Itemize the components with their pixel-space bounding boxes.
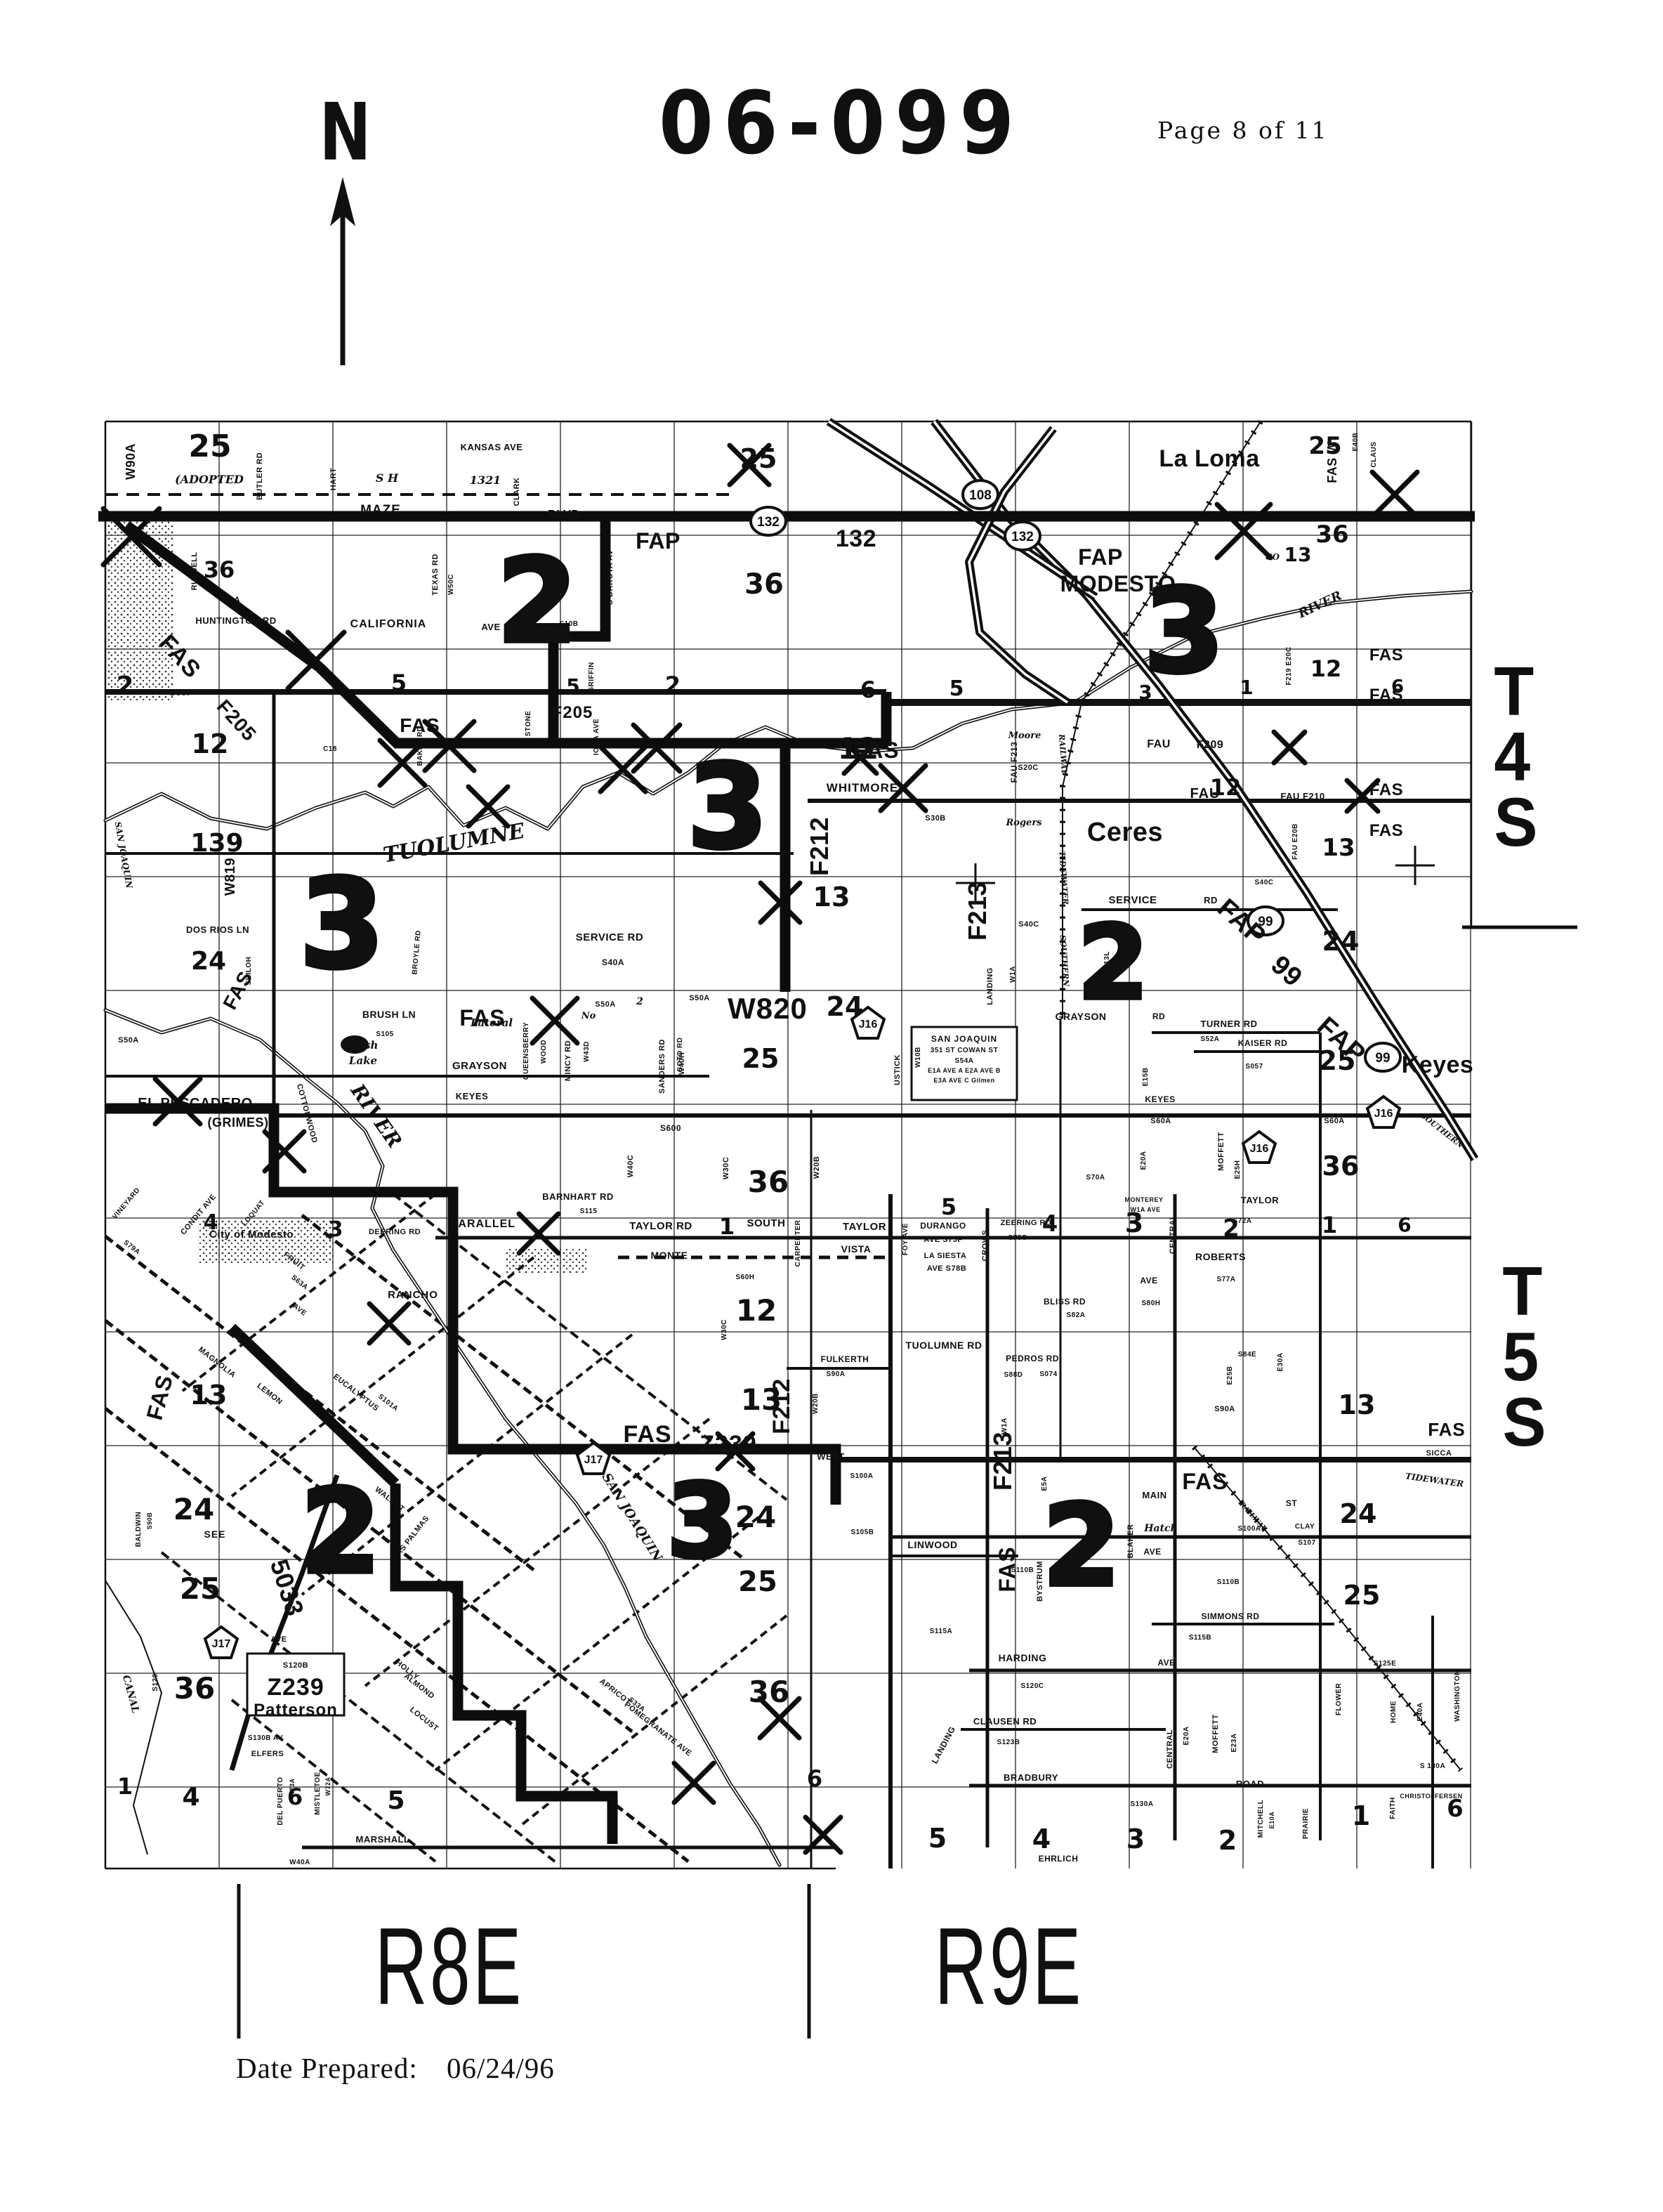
shield-number: 108 <box>969 488 992 503</box>
map-label: 24 <box>1322 926 1360 957</box>
map-label: La Loma <box>1159 445 1260 472</box>
date-prepared-value: 06/24/96 <box>447 2052 555 2084</box>
map-label: MONTEREY <box>1124 1196 1163 1203</box>
map-label: KEYES <box>1145 1094 1175 1104</box>
map-label: PRAIRIE <box>1302 1808 1310 1839</box>
map-label: BRUSH LN <box>362 1009 416 1020</box>
map-label: TUOLUMNE <box>381 819 527 868</box>
map-label: S110B <box>1011 1566 1034 1574</box>
map-label: KAISER RD <box>1238 1038 1288 1048</box>
shield-number: J16 <box>1250 1143 1269 1155</box>
map-label: FAP <box>636 528 681 554</box>
map-label: RAILWAY <box>1057 733 1069 775</box>
river-core <box>105 1010 780 1865</box>
date-prepared: Date Prepared: 06/24/96 <box>236 2051 555 2085</box>
map-label: ROAD <box>1236 1779 1264 1789</box>
map-label: S60A <box>1150 1117 1171 1125</box>
map-box-label: SAN JOAQUIN <box>931 1034 997 1044</box>
map-label: SOTO RD <box>676 1038 684 1072</box>
map-label: MISTLETOE <box>314 1772 322 1815</box>
map-label: S40C <box>1018 920 1039 929</box>
map-label: BLISS RD <box>1044 1297 1086 1307</box>
map-label: S60H <box>735 1274 754 1281</box>
map-label: RANCHO <box>388 1289 438 1301</box>
map-label: MARSHALL <box>356 1834 410 1845</box>
township-label-t5s: T5S <box>1502 1259 1539 1455</box>
map-label: USTICK <box>893 1054 902 1085</box>
map-label: 2 <box>116 672 133 700</box>
freeway-core <box>829 421 1096 597</box>
map-label: HARDING <box>999 1652 1047 1663</box>
map-label: S70A <box>1086 1174 1105 1182</box>
map-label: SOUTHERN <box>1058 935 1070 988</box>
map-label: FAS <box>142 1372 178 1422</box>
map-label: S600 <box>660 1123 681 1133</box>
map-label: W20B <box>812 1393 820 1414</box>
map-label: VINEYARD <box>111 1186 142 1221</box>
map-label: W72A <box>324 1776 331 1795</box>
map-label: FAS <box>1369 686 1403 705</box>
map-label: FAP <box>1078 544 1123 570</box>
map-label: City of Modesto <box>209 1229 294 1241</box>
map-label: Keyes <box>1402 1052 1474 1078</box>
map-label: 1321 <box>470 473 501 487</box>
map-label: S60A <box>1324 1117 1345 1125</box>
map-label: CLAY <box>1295 1523 1315 1531</box>
map-label: 13 <box>813 882 850 912</box>
map-label: E10A <box>1268 1812 1275 1829</box>
map-label: SICCA <box>1426 1449 1452 1458</box>
map-label: W819 <box>223 858 238 896</box>
shield-number: J16 <box>1374 1108 1393 1120</box>
map-label: ELFERS <box>251 1750 284 1758</box>
map-label: W50C <box>447 574 455 595</box>
map-label: FAS <box>1369 646 1403 665</box>
map-label: E40A <box>1416 1702 1424 1721</box>
map-label: FAU F213 <box>1009 742 1019 783</box>
map-label: FLOWER <box>1335 1683 1343 1716</box>
map-label: 3 <box>329 1217 343 1242</box>
map-label: 6 <box>807 1765 822 1792</box>
map-label: Moore <box>1008 731 1041 741</box>
map-label: 24 <box>1340 1498 1377 1529</box>
map-label: BAKER RD <box>416 726 424 766</box>
shield-number: J17 <box>584 1454 603 1466</box>
map-label: 36 <box>744 568 784 601</box>
river-path <box>1074 591 1471 702</box>
map-label: 25 <box>188 428 231 464</box>
district-number: 3 <box>688 740 768 875</box>
map-label: S82A <box>1066 1311 1085 1319</box>
map-label: SEE <box>204 1529 225 1540</box>
map-label: GRAYSON <box>452 1060 507 1072</box>
map-label: 2 <box>636 996 643 1007</box>
map-label: S057 <box>1245 1063 1263 1071</box>
date-prepared-label: Date Prepared: <box>236 2052 418 2084</box>
map-label: LINWOOD <box>907 1539 957 1550</box>
map-label: CLARK <box>513 478 521 506</box>
map-label: CROWS <box>981 1230 990 1262</box>
map-label: SAN JOAQUIN <box>599 1470 666 1565</box>
map-label: MITCHELL <box>1257 1800 1265 1838</box>
map-label: W1A AVE <box>1130 1206 1160 1213</box>
map-label: FAU E20B <box>1291 823 1299 860</box>
map-label: S101A <box>376 1393 400 1413</box>
map-label: S40A <box>602 957 624 967</box>
shield-number: J17 <box>212 1638 231 1650</box>
map-label: TUOLUMNE RD <box>906 1340 982 1351</box>
map-label: AVE <box>291 1302 308 1318</box>
map-label: FAU F210 <box>1280 791 1325 801</box>
map-label: W820 <box>728 992 808 1025</box>
map-label: CALIFORNIA <box>350 618 427 630</box>
map-box-label: E3A AVE C Gilmen <box>933 1077 994 1084</box>
map-label: LANDING <box>930 1725 958 1765</box>
map-label: ST <box>1286 1498 1298 1508</box>
map-label: 13 <box>1284 543 1312 566</box>
map-label: HUNTINGTON RD <box>195 615 276 626</box>
map-label: BUTLER RD <box>256 452 264 500</box>
map-label: E23A <box>1230 1733 1238 1752</box>
map-label: 12 <box>1310 655 1342 682</box>
map-label: LA SIESTA <box>924 1252 967 1260</box>
road-heavy <box>395 1484 612 1844</box>
map-label: 24 <box>173 1492 214 1526</box>
map-label: S75C <box>1008 1234 1027 1242</box>
map-label: Lake <box>348 1054 377 1067</box>
map-label: 25 <box>742 1043 780 1074</box>
range-label-r8e: R8E <box>375 1911 524 2021</box>
map-label: 5 <box>928 1823 947 1854</box>
map-label: S107 <box>1298 1539 1315 1547</box>
map-label: SHILOH <box>245 957 253 986</box>
map-label: 3 <box>1126 1824 1145 1854</box>
map-label: WHITMORE <box>827 781 898 794</box>
map-label: No <box>581 1011 596 1021</box>
map-label: RD <box>1152 1012 1165 1021</box>
map-label: S8A <box>223 595 241 605</box>
map-label: 5 <box>387 1786 405 1815</box>
map-label: FULKERTH <box>821 1354 869 1364</box>
map-label: FAS <box>1182 1469 1228 1494</box>
map-label: S80H <box>1141 1300 1160 1307</box>
shield-number: 132 <box>757 515 780 530</box>
map-label: S79A <box>122 1238 142 1256</box>
map-label: 4 <box>182 1783 199 1812</box>
map-label: 12 <box>192 728 229 759</box>
map-label: RUSSELL <box>190 552 199 591</box>
map-label: W10B <box>914 1047 922 1068</box>
map-label: E30A <box>1277 1352 1284 1371</box>
map-label: IOWA AVE <box>593 719 600 756</box>
map-label: KEYES <box>456 1091 489 1101</box>
map-box-label: 351 ST COWAN ST <box>931 1047 998 1054</box>
map-box-label: S54A <box>954 1057 973 1065</box>
map-label: 36 <box>748 1165 789 1199</box>
map-label: GRIFFIN <box>588 662 596 693</box>
map-label: E25H <box>1234 1160 1242 1179</box>
map-label: F209 <box>1197 739 1223 751</box>
map-label: F213 <box>988 1432 1017 1491</box>
map-label: S074 <box>1039 1370 1057 1378</box>
map-label: AVE <box>270 1635 287 1644</box>
river-core <box>1074 591 1471 702</box>
map-label: S100A <box>850 1472 873 1480</box>
map-label: (ADOPTED <box>175 473 244 486</box>
map-label: TIDEWATER <box>1405 1471 1464 1488</box>
map-label: MONTE <box>650 1250 688 1261</box>
map-label: AVE <box>1143 1547 1161 1557</box>
district-number: 2 <box>1042 1480 1120 1611</box>
map-label: S125E <box>1374 1660 1397 1668</box>
map-label: 4 <box>204 1210 218 1235</box>
map-label: Sec. <box>170 688 190 698</box>
map-label: BARNHART RD <box>542 1191 614 1202</box>
map-label: 6 <box>1447 1795 1464 1823</box>
map-label: 36 <box>204 556 235 583</box>
map-label: S130A <box>1130 1800 1153 1808</box>
map-label: F212 <box>768 1378 795 1434</box>
map-label: W90A <box>124 443 138 480</box>
map-label: FAS <box>459 1005 505 1030</box>
map-label: E20A <box>1183 1726 1190 1745</box>
map-box-label: E1A AVE A E2A AVE B <box>928 1067 1001 1074</box>
map-label: S105B <box>850 1529 874 1536</box>
map-label: 99 <box>1266 950 1308 993</box>
map-label: 25 <box>1343 1580 1381 1611</box>
map-label: 6 <box>860 676 876 703</box>
map-label: BROYLE RD <box>411 930 422 975</box>
map-label: SOUTH <box>747 1217 786 1229</box>
map-label: SAN JOAQUIN <box>113 821 135 890</box>
district-number: 2 <box>1078 904 1149 1023</box>
map-label: S115A <box>930 1628 953 1635</box>
map-label: S90B <box>146 1512 153 1530</box>
district-number: 3 <box>667 1462 738 1581</box>
map-label: TAYLOR <box>1241 1195 1279 1205</box>
map-label: F213 <box>963 882 992 941</box>
map-label: FAS <box>853 738 899 763</box>
map-label: Ceres <box>1087 818 1163 847</box>
map-label: E40B <box>1352 432 1360 451</box>
map-label: AVE <box>1157 1658 1175 1668</box>
map-label: TAYLOR <box>843 1221 886 1233</box>
map-label: 2 <box>1218 1825 1237 1856</box>
map-label: 5 <box>391 669 407 696</box>
map-label: LEMON <box>256 1382 284 1406</box>
map-label: S52A <box>1200 1035 1219 1043</box>
map-label: WOOD <box>540 1040 548 1064</box>
map-label: RIVER <box>1295 589 1344 622</box>
map-label: 4 <box>1042 1210 1058 1237</box>
map-label: 5 <box>941 1193 957 1220</box>
map-label: 25 <box>740 443 777 474</box>
map-label: FAS <box>1369 821 1403 840</box>
map-label: 132 <box>836 525 876 552</box>
map-label: EUCALYPTUS <box>331 1373 380 1413</box>
map-label: RD <box>1204 895 1218 905</box>
map-label: CARPENTER <box>794 1219 802 1267</box>
map-label: S90A <box>826 1370 845 1378</box>
map-label: DEERING RD <box>369 1228 421 1236</box>
map-label: C18 <box>323 745 337 753</box>
map-label: F219 E20C <box>1285 646 1293 685</box>
map-label: TAYLOR RD <box>629 1220 692 1232</box>
map-label: W30C <box>722 1157 730 1180</box>
map-box-label: Patterson <box>254 1701 338 1720</box>
map-label: CO <box>1266 552 1280 562</box>
map-label: 38C-98 <box>954 1456 981 1465</box>
map-label: S DAKOTA AV <box>606 549 614 605</box>
map-label: 36 <box>749 1675 789 1709</box>
map-label: 24 <box>735 1500 776 1534</box>
map-label: Hatch <box>1143 1523 1177 1534</box>
map-label: POMEGRANATE AVE <box>623 1701 693 1758</box>
map-label: S115B <box>1189 1634 1212 1642</box>
map-label: S105 <box>376 1030 393 1038</box>
map-label: 1 <box>1322 1212 1337 1238</box>
map-label: TEXAS RD <box>431 554 440 596</box>
map-label: S50A <box>118 1036 139 1045</box>
map-label: Z239 <box>699 1431 757 1458</box>
map-label: S120C <box>1020 1682 1044 1690</box>
map-label: STONE <box>525 711 532 737</box>
map-label: DURANGO <box>920 1221 966 1231</box>
map-label: 5 <box>566 674 579 698</box>
map-label: CLAUS <box>1370 442 1378 468</box>
map-label: 4 <box>1032 1824 1051 1854</box>
map-label: E15B <box>1142 1067 1150 1086</box>
map-label: FAS <box>1428 1419 1466 1440</box>
map-label: 36 <box>1322 1151 1360 1182</box>
map-label: F205 <box>552 703 593 722</box>
map-label: PEDROS RD <box>1006 1354 1059 1363</box>
map-label: FOY AVE <box>902 1223 909 1255</box>
map-label: 36 <box>174 1671 215 1706</box>
shield-number: 132 <box>1011 530 1034 544</box>
map-label: 25 <box>180 1571 221 1606</box>
map-label: TIDEWATER <box>1057 851 1070 905</box>
map-label: W30C <box>721 1319 728 1340</box>
map-label: SIMMONS RD <box>1202 1611 1260 1621</box>
map-label: S84E <box>1238 1351 1256 1359</box>
map-label: S90A <box>1214 1405 1235 1413</box>
map-label: TURNER RD <box>1200 1019 1257 1029</box>
map-label: FAITH <box>1389 1797 1397 1819</box>
map-label: E20A <box>1140 1151 1148 1170</box>
map-label: BRADBURY <box>1004 1772 1058 1783</box>
map-label: S20C <box>1018 764 1039 772</box>
map-label: S120 <box>152 1673 159 1691</box>
map-label: W40C <box>626 1155 635 1178</box>
map-label: CLAUSEN RD <box>973 1716 1037 1727</box>
map-label: 36 <box>1315 521 1348 549</box>
map-label: KANSAS AVE <box>461 442 523 452</box>
township-label-t4s: T4S <box>1494 659 1530 855</box>
map-label: FAU <box>1190 786 1221 801</box>
map-label: S H <box>376 471 399 485</box>
map-label: DOS RIOS LN <box>186 924 249 935</box>
map-label: DEL PUERTO <box>277 1776 284 1825</box>
map-label: 25 <box>738 1566 777 1598</box>
map-label: FAP <box>1211 894 1271 952</box>
map-label: W20B <box>813 1156 821 1179</box>
map-label: EL PESCADERO <box>138 1096 252 1111</box>
map-label: LOCUST <box>408 1706 440 1733</box>
map-label: 6 <box>1398 1213 1411 1236</box>
map-label: F212 <box>805 817 834 876</box>
map-label: FAS <box>1369 780 1403 799</box>
map-label: W1A <box>1001 1418 1008 1434</box>
district-number: 3 <box>1144 564 1225 699</box>
district-number: 2 <box>301 1465 381 1599</box>
map-label: S50A <box>595 1000 616 1009</box>
map-label: S110B <box>1217 1578 1240 1586</box>
map-label: FAS <box>623 1421 671 1448</box>
map-label: FAU <box>1147 738 1171 750</box>
road-medium <box>105 1581 162 1854</box>
map-label: 1 <box>1352 1800 1370 1831</box>
district-number: 3 <box>299 853 385 996</box>
map-canvas: S120BZ239PattersonSAN JOAQUIN351 ST COWA… <box>0 0 1663 2212</box>
map-label: E25B <box>1226 1366 1234 1385</box>
map-label: 6 <box>287 1784 303 1810</box>
map-label: CANAL <box>120 1674 141 1715</box>
map-label: S130B AV <box>248 1734 283 1742</box>
map-label: S50A <box>689 994 710 1002</box>
map-label: 13 <box>1339 1389 1376 1420</box>
map-label: CENTRAL <box>1166 1729 1174 1769</box>
map-label: S40C <box>1254 879 1273 886</box>
map-label: WASHINGTON <box>1454 1670 1461 1722</box>
map-label: EHRLICH <box>1039 1854 1079 1864</box>
map-label: 139 <box>190 829 243 858</box>
map-label: 24 <box>827 991 864 1022</box>
map-label: CENTRAL <box>1169 1215 1177 1254</box>
map-label: 1 <box>719 1213 735 1240</box>
map-label: AVE S78B <box>927 1264 966 1273</box>
map-label: FAS W <box>1325 441 1339 483</box>
map-label: W43D <box>583 1041 591 1062</box>
map-label: BLVD <box>548 509 580 521</box>
map-label: 13 <box>190 1380 228 1411</box>
map-label: S88D <box>1004 1371 1023 1379</box>
range-label-r9e: R9E <box>935 1911 1084 2021</box>
map-label: VISTA <box>841 1243 872 1255</box>
map-label: HART <box>329 468 338 491</box>
map-label: MINCY RD <box>564 1040 572 1081</box>
map-label: AVE S75F <box>923 1236 962 1244</box>
map-label: 24 <box>191 947 226 976</box>
map-label: 1 <box>1240 676 1253 699</box>
map-label: 12 <box>736 1293 777 1328</box>
map-label: 5 <box>949 676 964 701</box>
map-label: Rogers <box>1005 818 1042 828</box>
map-label: MOFFETT <box>1217 1132 1225 1170</box>
shield-number: 99 <box>1375 1051 1390 1066</box>
map-label: W40A <box>289 1859 310 1866</box>
map-label: WEST <box>817 1451 845 1462</box>
map-label: BLAKER <box>1126 1524 1135 1559</box>
map-label: PARALLEL <box>451 1218 515 1230</box>
map-label: SERVICE RD <box>576 931 643 943</box>
map-label: S63A <box>290 1274 310 1291</box>
district-number: 2 <box>497 534 578 669</box>
map-label: S77A <box>1216 1276 1235 1283</box>
map-label: W1A <box>1009 966 1017 983</box>
map-label: QUEENSBERRY <box>522 1022 530 1080</box>
map-label: HOME <box>1390 1701 1398 1723</box>
